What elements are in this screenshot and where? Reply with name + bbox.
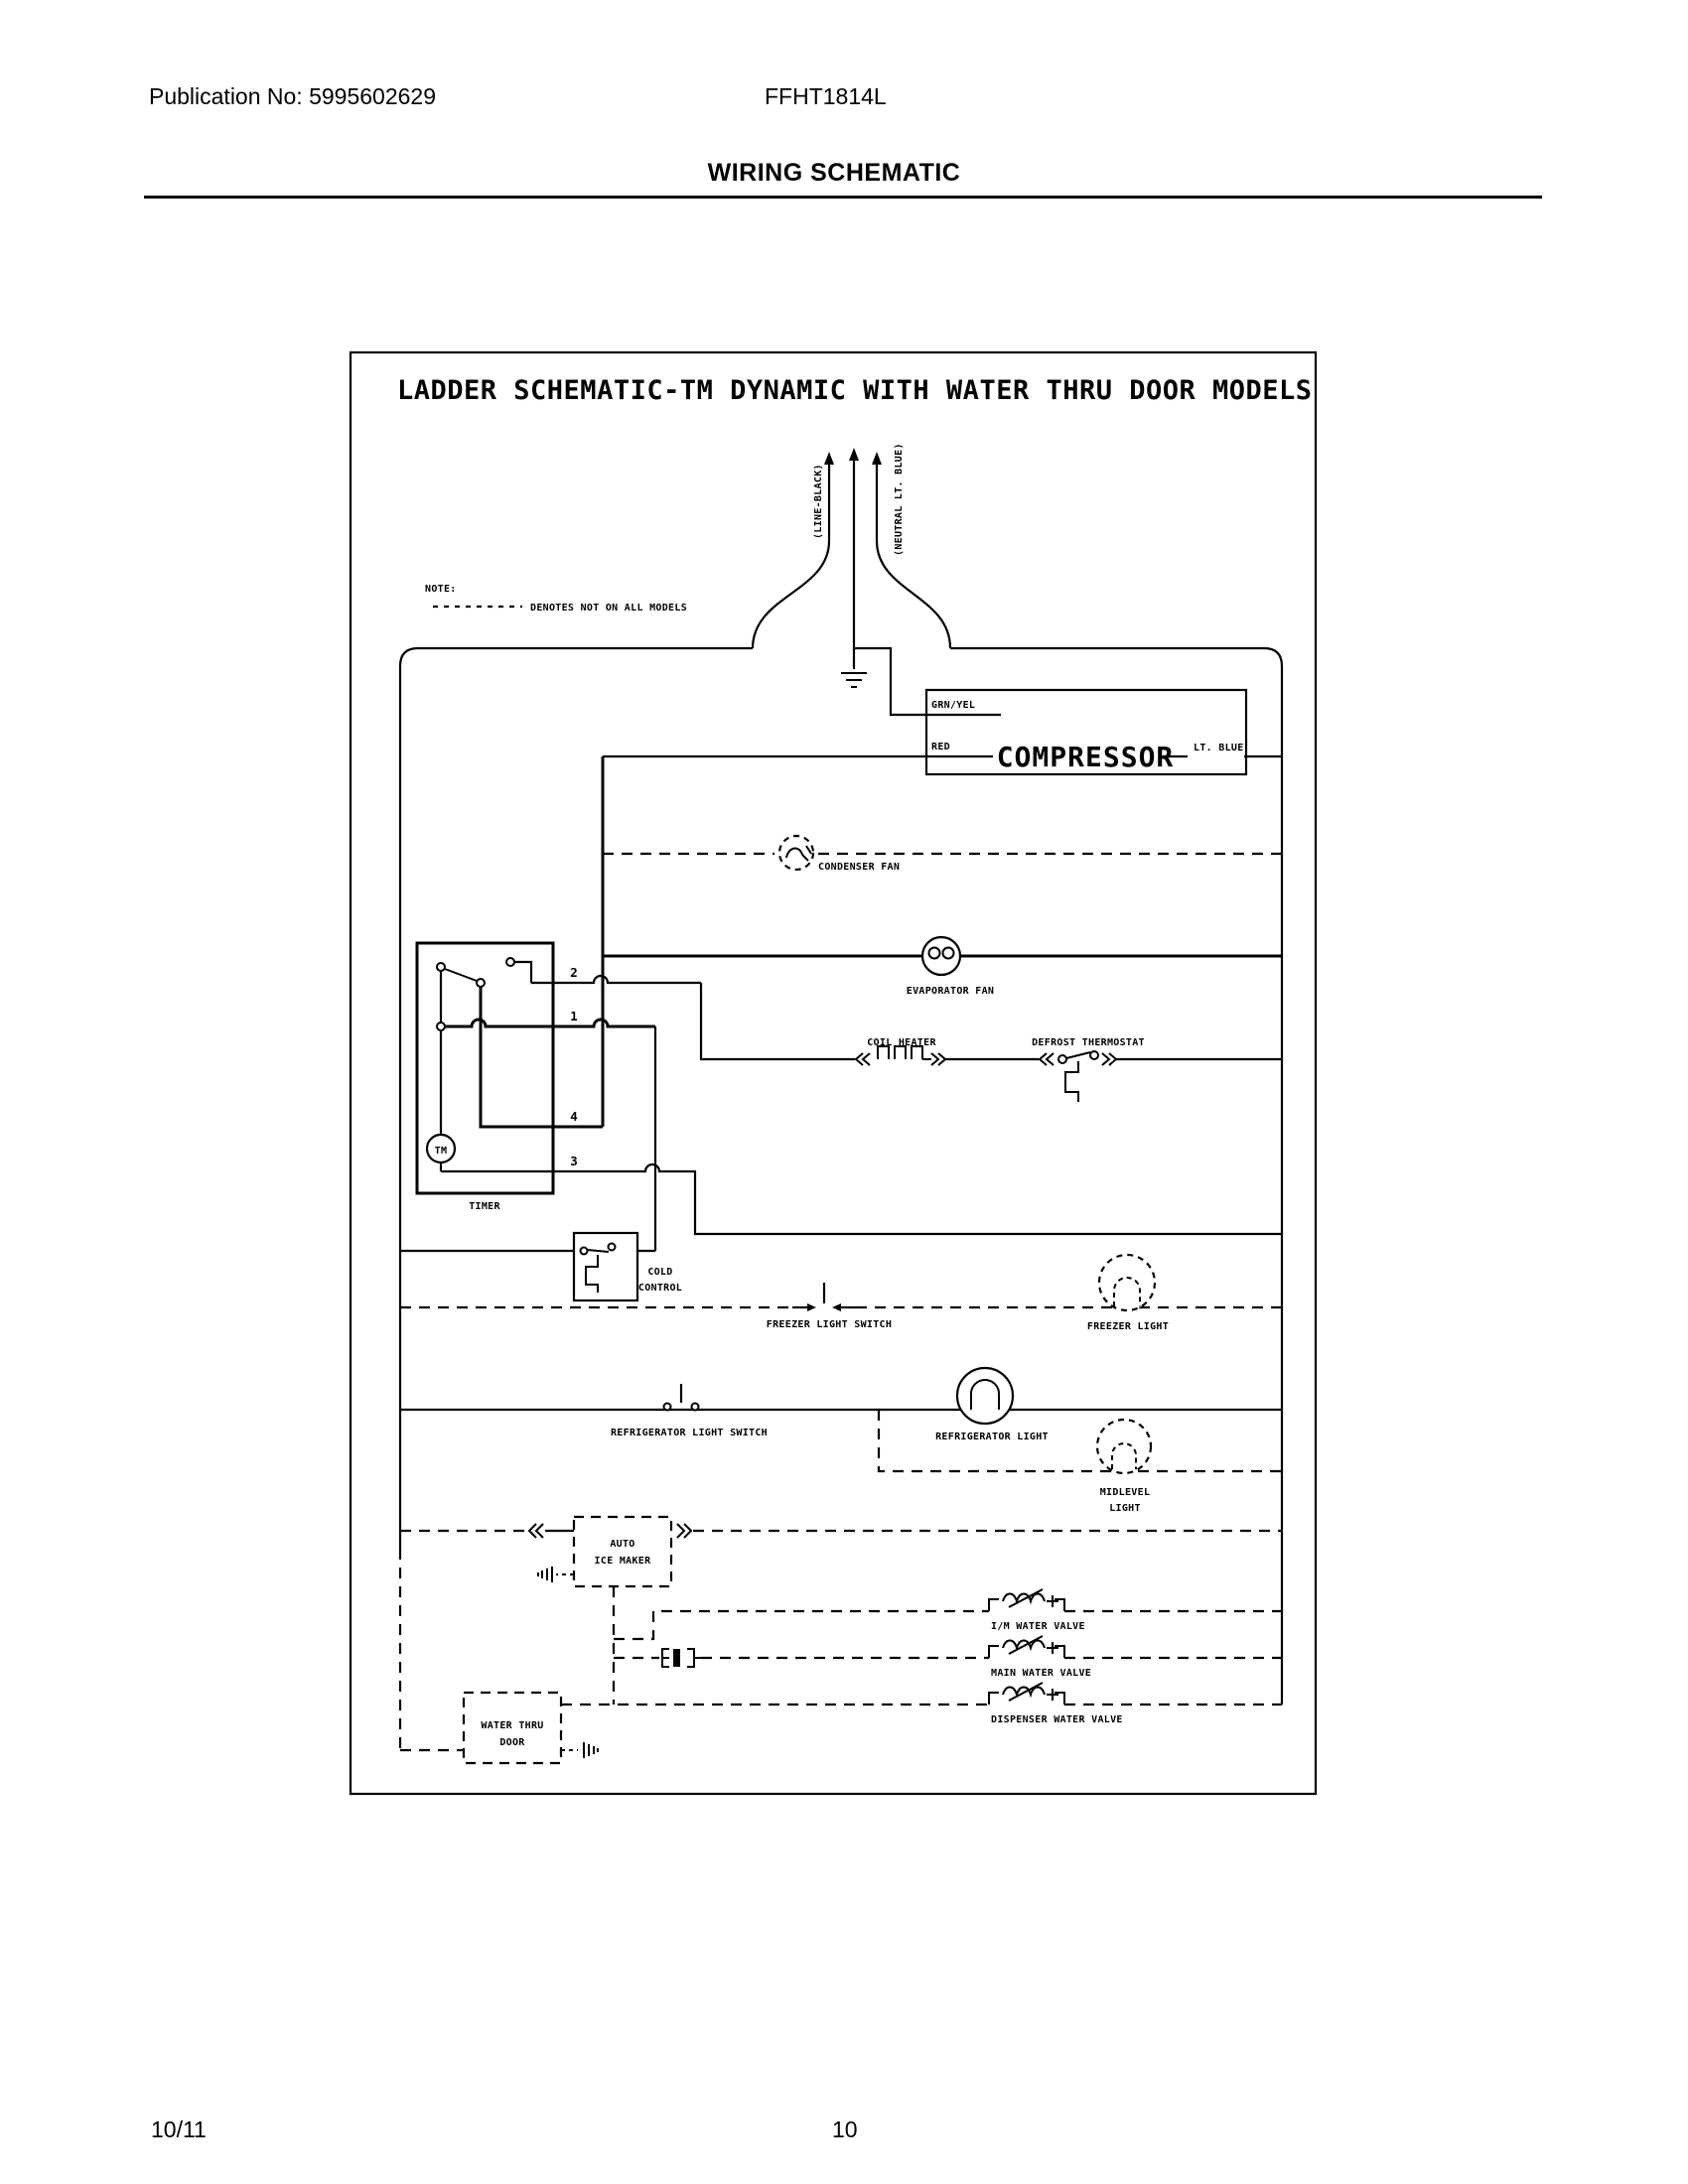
evaporator-fan-label: EVAPORATOR FAN <box>907 986 995 997</box>
water-thru-door-unit: WATER THRU DOOR <box>400 1693 598 1763</box>
left-rail <box>400 648 753 1549</box>
cold-control-unit: COLD CONTROL <box>400 1233 682 1300</box>
freezer-light-lamp-icon <box>1099 1255 1155 1310</box>
ice-maker-box <box>574 1517 671 1586</box>
main-water-valve-coil-icon <box>989 1636 1064 1658</box>
schematic-border <box>351 352 1316 1794</box>
midlevel-light-branch: MIDLEVEL LIGHT <box>879 1410 1282 1514</box>
midlevel-light-label-2: LIGHT <box>1109 1503 1141 1514</box>
main-water-valve-branch: MAIN WATER VALVE <box>614 1636 1282 1679</box>
neutral-blue-label: (NEUTRAL LT. BLUE) <box>894 443 905 556</box>
schematic-title: LADDER SCHEMATIC-TM DYNAMIC WITH WATER T… <box>397 375 1313 406</box>
condenser-fan-branch: CONDENSER FAN <box>603 836 1282 873</box>
connector-left-icon <box>529 1524 543 1538</box>
dispenser-water-valve-branch: DISPENSER WATER VALVE <box>561 1683 1282 1725</box>
neutral-arrow-icon <box>872 452 882 465</box>
note-label: NOTE: <box>425 584 457 595</box>
water-thru-door-label-2: DOOR <box>499 1737 525 1748</box>
document-page: Publication No: 5995602629 FFHT1814L WIR… <box>0 0 1688 2184</box>
freezer-light-branch: FREEZER LIGHT SWITCH FREEZER LIGHT <box>400 1255 1282 1332</box>
cold-control-label-1: COLD <box>647 1267 672 1278</box>
timer-terminal4-wire <box>481 987 603 1127</box>
timer-terminal-2: 2 <box>570 965 578 980</box>
water-thru-door-label-1: WATER THRU <box>481 1720 543 1731</box>
freezer-light-switch-label: FREEZER LIGHT SWITCH <box>767 1319 892 1330</box>
compressor-unit: GRN/YEL RED COMPRESSOR LT. BLUE <box>603 648 1282 774</box>
defrost-thermostat-label: DEFROST THERMOSTAT <box>1032 1037 1145 1048</box>
timer-motor-label: TM <box>435 1146 448 1157</box>
compressor-name: COMPRESSOR <box>997 741 1175 773</box>
midlevel-light-lamp-icon <box>1097 1420 1151 1473</box>
evaporator-fan-motor-icon <box>922 937 960 975</box>
dispenser-water-valve-coil-icon <box>989 1683 1064 1705</box>
refrigerator-light-label: REFRIGERATOR LIGHT <box>935 1432 1049 1442</box>
water-thru-door-ground-icon <box>584 1742 598 1758</box>
connector-right-icon <box>677 1524 691 1538</box>
footer-revision: 10/11 <box>151 2116 207 2143</box>
im-water-valve-branch: I/M WATER VALVE <box>614 1589 1282 1639</box>
timer-terminal3-wire <box>441 1164 1282 1234</box>
im-water-valve-coil-icon <box>989 1589 1064 1611</box>
ice-maker-label-2: ICE MAKER <box>595 1556 652 1567</box>
refrigerator-light-switch-label: REFRIGERATOR LIGHT SWITCH <box>611 1428 768 1438</box>
ice-maker-ground-icon <box>538 1567 552 1582</box>
timer-terminal-3: 3 <box>570 1154 578 1168</box>
note-text: DENOTES NOT ON ALL MODELS <box>530 603 687 614</box>
timer-terminal-4: 4 <box>570 1109 578 1124</box>
schematic-note: NOTE: DENOTES NOT ON ALL MODELS <box>425 584 687 614</box>
im-water-valve-label: I/M WATER VALVE <box>991 1621 1085 1632</box>
footer-page-number: 10 <box>832 2116 858 2143</box>
power-entry: (LINE-BLACK) (NEUTRAL LT. BLUE) <box>400 443 1282 1705</box>
cold-control-box <box>574 1233 637 1300</box>
timer-label: TIMER <box>469 1201 500 1212</box>
line-arrow-icon <box>824 452 834 465</box>
right-rail <box>950 648 1282 1705</box>
timer-terminal1-wire <box>445 1020 655 1026</box>
freezer-light-label: FREEZER LIGHT <box>1087 1321 1169 1332</box>
evaporator-fan-branch: EVAPORATOR FAN <box>603 937 1282 997</box>
ice-maker-label-1: AUTO <box>610 1539 634 1550</box>
condenser-fan-label: CONDENSER FAN <box>818 862 900 873</box>
coil-heater-icon <box>856 1046 945 1065</box>
defrost-branch: COIL HEATER DEFROST THERMOSTAT <box>701 983 1282 1102</box>
ice-maker-branch: AUTO ICE MAKER <box>400 1517 1282 1750</box>
timer-unit: TM 2 1 4 3 TIMER <box>417 756 1282 1251</box>
ground-icon <box>841 673 867 687</box>
defrost-thermostat-icon <box>1040 1051 1116 1102</box>
compressor-lead-grnyel: GRN/YEL <box>931 700 975 711</box>
ground-arrow-icon <box>849 448 859 461</box>
midlevel-light-label-1: MIDLEVEL <box>1100 1487 1151 1498</box>
cold-control-label-2: CONTROL <box>638 1283 682 1294</box>
condenser-fan-motor-icon <box>779 836 813 870</box>
coil-heater-label: COIL HEATER <box>867 1037 936 1048</box>
timer-terminal-1: 1 <box>570 1009 578 1024</box>
refrigerator-light-branch: REFRIGERATOR LIGHT SWITCH REFRIGERATOR L… <box>400 1368 1282 1442</box>
inline-connector-icon <box>661 1649 701 1667</box>
wiring-schematic-diagram: LADDER SCHEMATIC-TM DYNAMIC WITH WATER T… <box>0 0 1688 2184</box>
line-black-label: (LINE-BLACK) <box>813 464 824 539</box>
timer-switch-arm-icon <box>445 969 477 981</box>
timer-terminal2-wire <box>531 976 701 983</box>
dispenser-water-valve-label: DISPENSER WATER VALVE <box>991 1714 1123 1725</box>
compressor-lead-red: RED <box>931 742 950 752</box>
compressor-lead-ltblue: LT. BLUE <box>1194 743 1244 753</box>
refrigerator-light-lamp-icon <box>957 1368 1013 1424</box>
main-water-valve-label: MAIN WATER VALVE <box>991 1668 1091 1679</box>
cold-control-thermostat-icon <box>586 1255 598 1293</box>
